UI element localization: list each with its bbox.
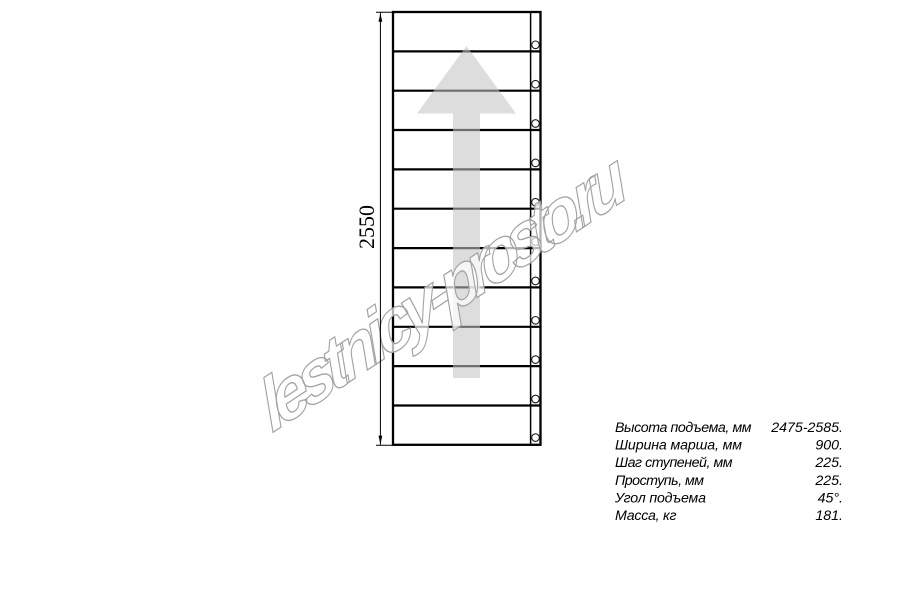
- svg-text:181.: 181.: [815, 508, 843, 524]
- svg-text:Угол подъема: Угол подъема: [614, 490, 706, 506]
- svg-text:Высота подъема, мм: Высота подъема, мм: [615, 420, 752, 436]
- svg-text:900.: 900.: [815, 438, 843, 454]
- svg-text:2475-2585.: 2475-2585.: [770, 420, 843, 436]
- svg-text:2550: 2550: [354, 205, 379, 249]
- svg-text:Шаг ступеней, мм: Шаг ступеней, мм: [615, 455, 733, 471]
- svg-text:Проступь, мм: Проступь, мм: [615, 473, 704, 489]
- svg-text:225.: 225.: [814, 473, 843, 489]
- svg-text:225.: 225.: [814, 455, 843, 471]
- svg-text:Ширина марша, мм: Ширина марша, мм: [615, 438, 742, 454]
- svg-text:Масса, кг: Масса, кг: [615, 508, 677, 524]
- svg-text:45°.: 45°.: [818, 490, 843, 506]
